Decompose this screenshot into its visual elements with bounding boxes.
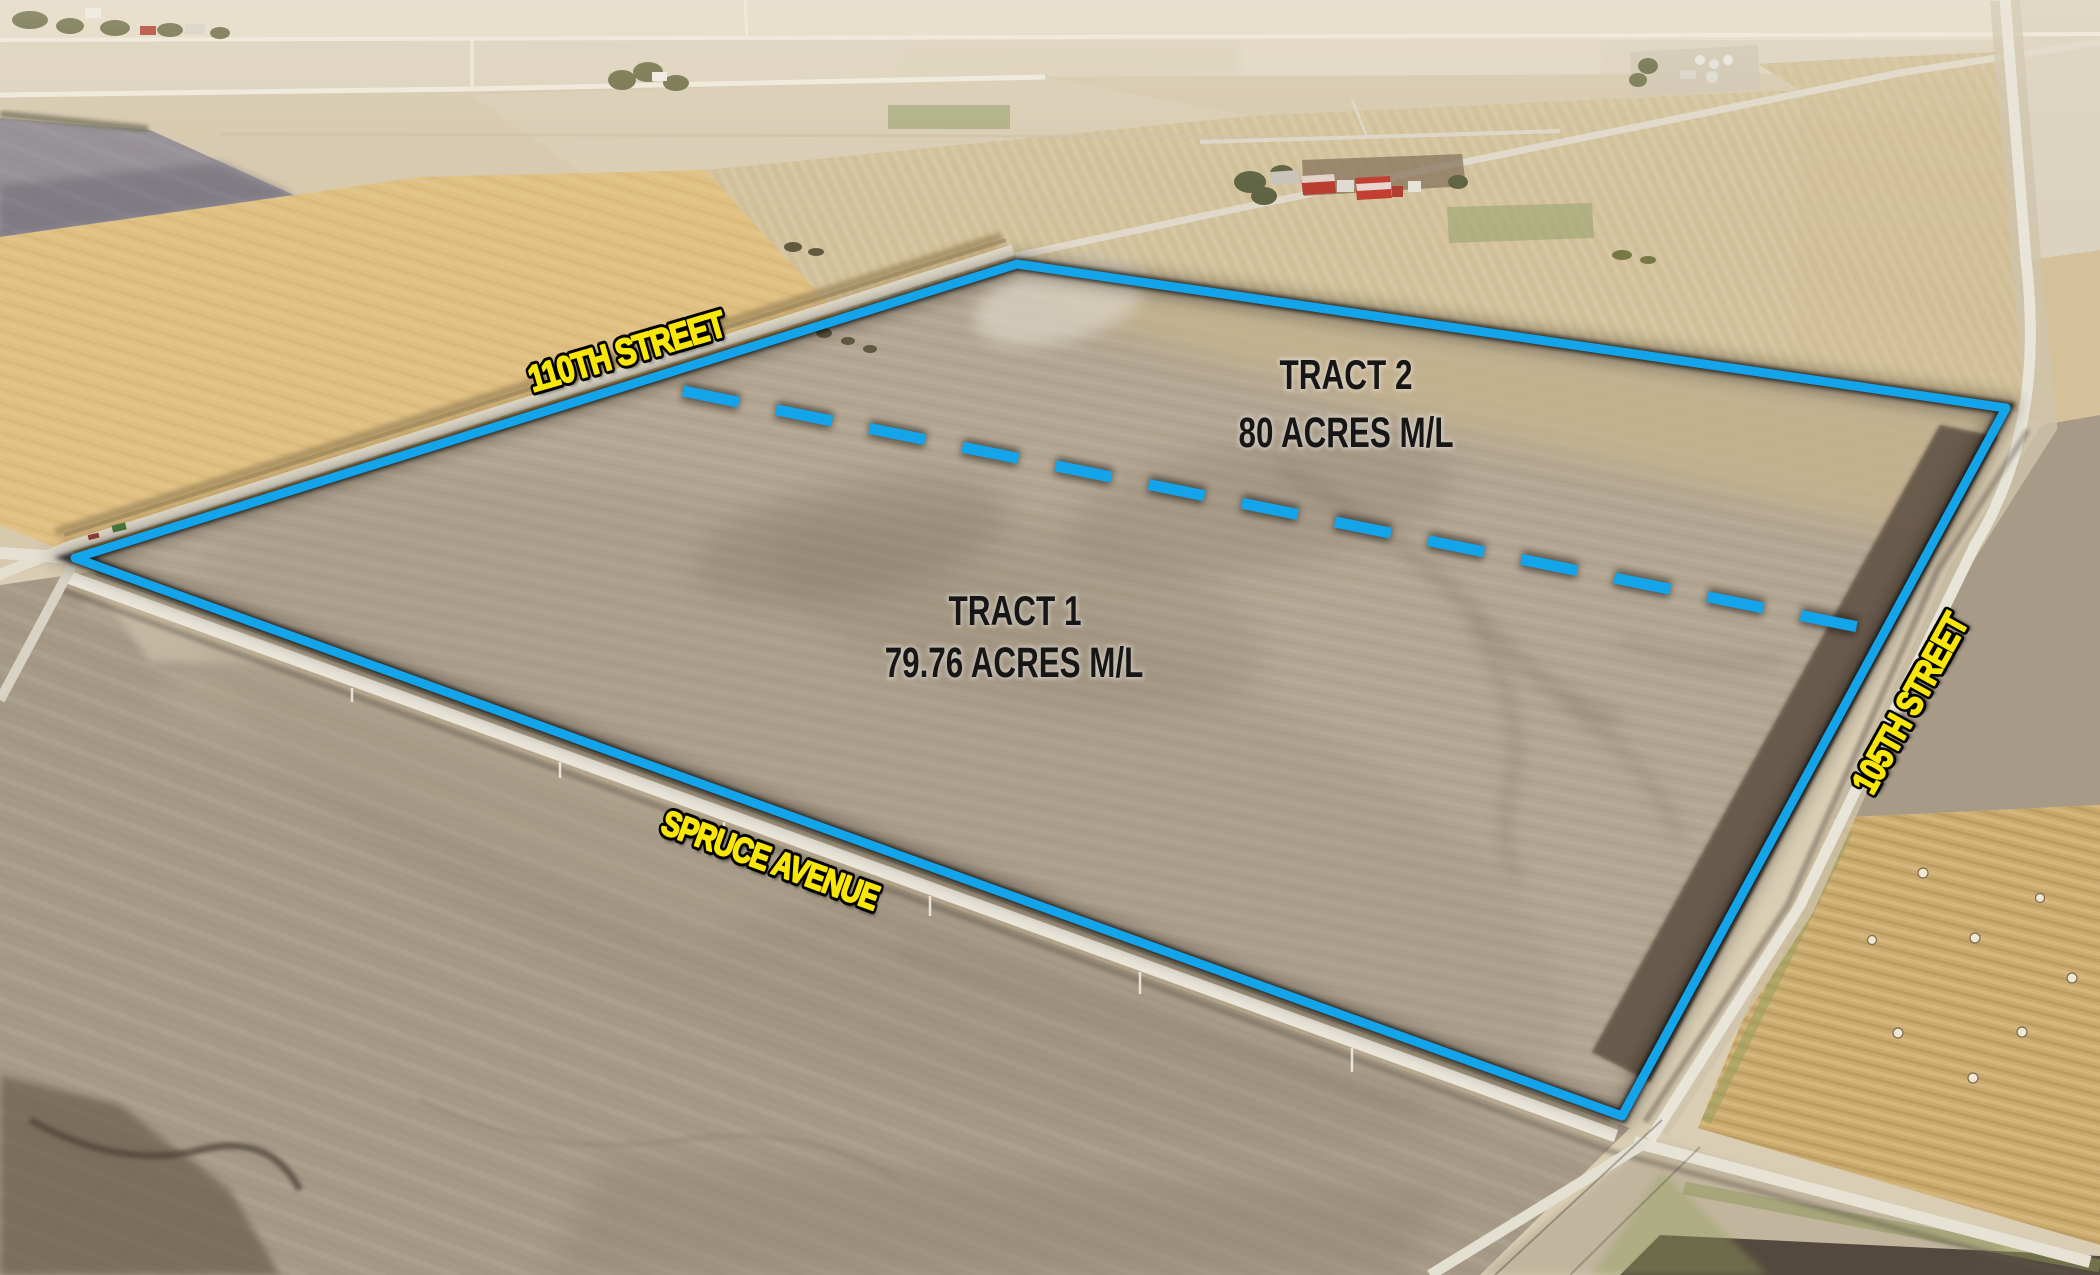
svg-text:80 ACRES M/L: 80 ACRES M/L xyxy=(1238,408,1453,456)
svg-text:TRACT 1: TRACT 1 xyxy=(949,587,1082,635)
svg-text:79.76 ACRES M/L: 79.76 ACRES M/L xyxy=(885,638,1144,686)
svg-text:TRACT 2: TRACT 2 xyxy=(1280,351,1413,399)
